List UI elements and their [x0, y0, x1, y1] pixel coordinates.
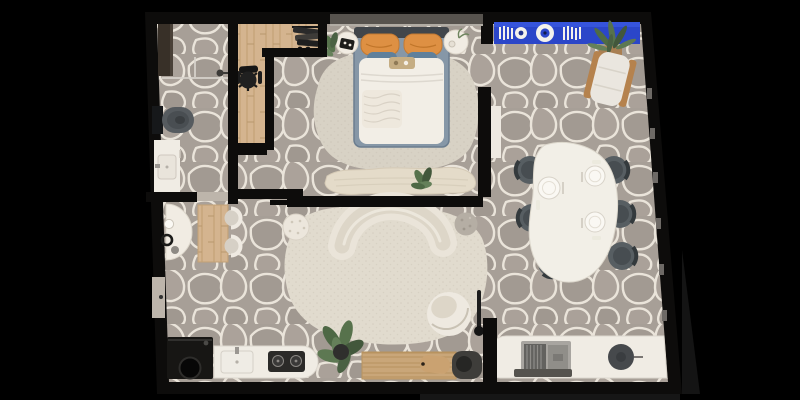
wood-table: [198, 205, 228, 262]
breakfast-tray: [389, 57, 415, 69]
wall-bathroom-bottom: [146, 192, 197, 202]
floor-plan-render: apartment-floor-plan-3d-render: [0, 0, 800, 400]
stone-decor: [171, 246, 179, 254]
wall-bathroom-right: [228, 24, 238, 204]
entry-door: [152, 277, 165, 318]
laptop: [514, 341, 572, 377]
swivel-armchair: [427, 292, 471, 336]
floor-plan-stage: apartment-floor-plan-3d-render: [0, 0, 800, 400]
plant-pot: [333, 344, 349, 360]
wood-bench: [362, 352, 456, 379]
stone-ball-pouf: [455, 213, 478, 236]
nightstand-left: [336, 32, 358, 54]
dark-mat-stool: [452, 351, 482, 379]
wall-console: [491, 106, 501, 158]
wall-living-top: [287, 196, 483, 207]
bathroom-door-panel: [197, 192, 228, 201]
wall-hall-right: [265, 55, 274, 150]
washing-machine: [167, 337, 213, 379]
quilted-pouf: [283, 214, 309, 240]
wall-hung-toilet: [152, 106, 194, 134]
wall-closet-right: [318, 24, 327, 53]
wall-step: [270, 200, 287, 205]
wall-bedroom-dining: [478, 87, 491, 197]
wall-hall-bottom: [228, 143, 267, 155]
work-nook: work-nook: [485, 336, 667, 378]
knob: [204, 341, 209, 346]
vanity-sink: [154, 140, 180, 194]
wall-closet-bottom: [262, 48, 327, 57]
double-bed: [354, 27, 449, 147]
wall-living-desk: [483, 318, 497, 382]
kitchen-counter: [214, 346, 318, 378]
white-dish: [164, 219, 173, 228]
cooktop: [268, 351, 305, 372]
wall-stub-top: [481, 24, 493, 44]
faucet: [155, 164, 160, 168]
foot-bench: [325, 166, 476, 194]
kitchen-faucet: [235, 347, 239, 354]
pillow-orange-right: [404, 34, 442, 55]
